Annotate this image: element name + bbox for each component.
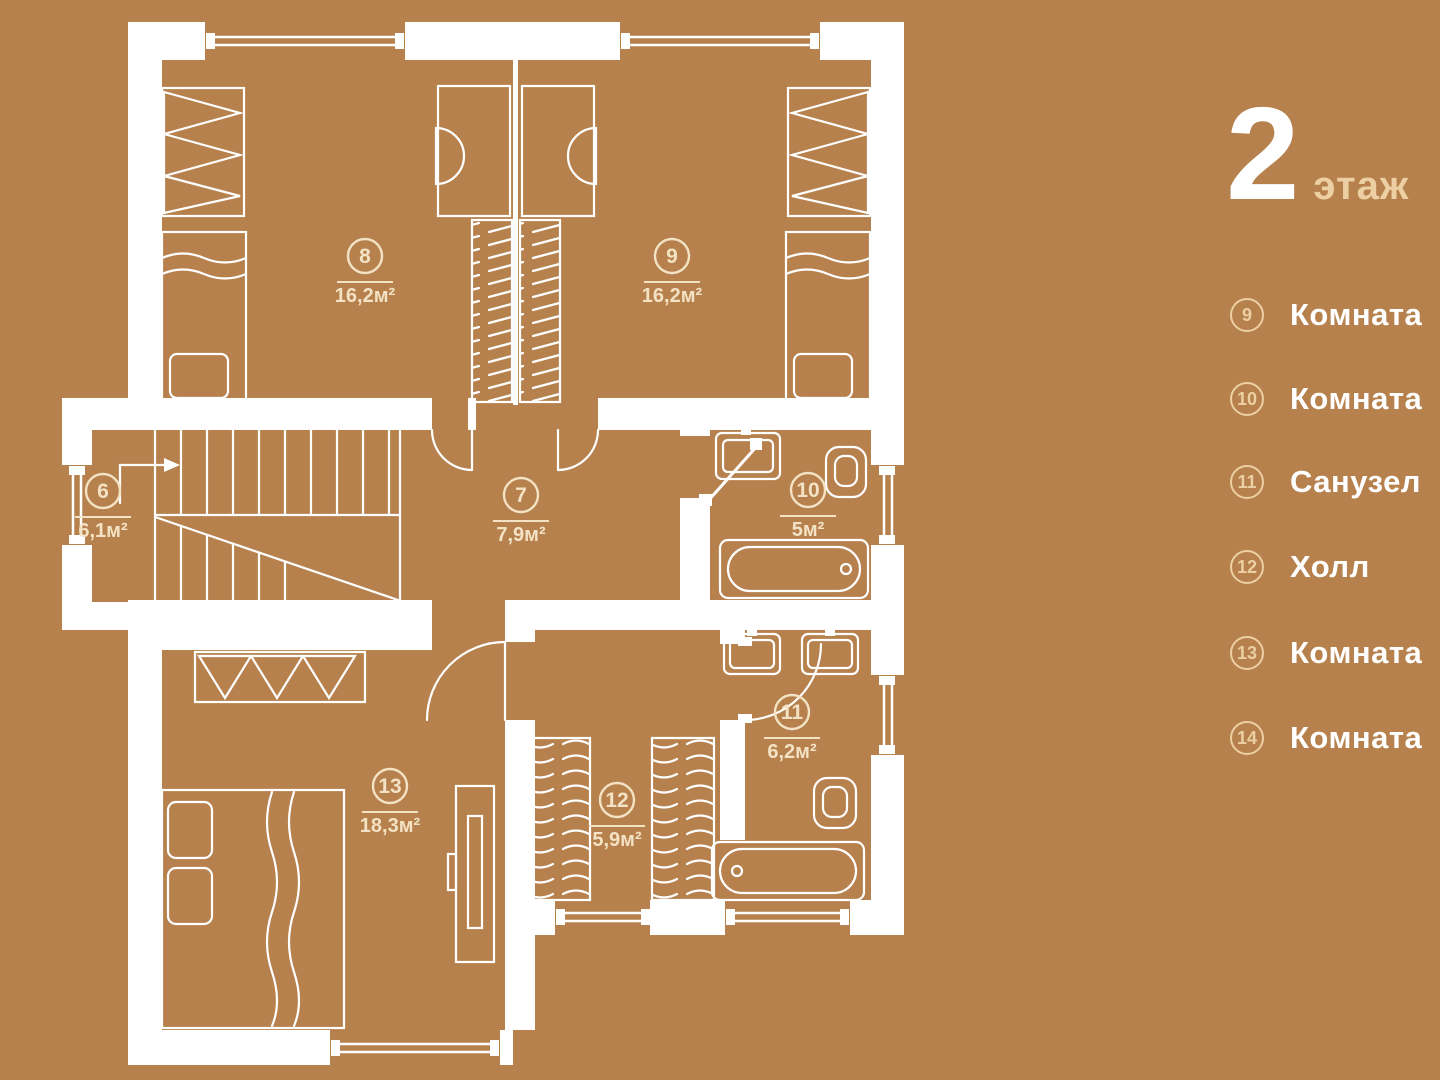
closet-room8 [472, 220, 512, 402]
room-11-number: 11 [781, 701, 804, 724]
wall-mid-left [128, 398, 432, 430]
desk-room9 [522, 86, 594, 216]
wall-mid-right [606, 398, 871, 430]
bed-room9 [786, 232, 870, 418]
window-hall12-bottom [555, 900, 650, 935]
wall-bath10-left [680, 498, 710, 600]
door-room8 [432, 430, 472, 470]
wall-room13-right-stub [505, 630, 535, 642]
wall-band-right [505, 600, 871, 630]
wardrobe-right-hall12 [652, 738, 714, 900]
doors [427, 430, 821, 723]
sink-bath10 [716, 426, 780, 479]
stair-treads [155, 430, 400, 602]
stair-direction-arrow [120, 458, 180, 503]
room-9-furniture [522, 86, 870, 418]
wall-left-upper [128, 22, 162, 430]
bath-10-fixtures [716, 426, 868, 598]
room-8-label: 8 16,2м² [335, 239, 396, 307]
door-room13 [427, 642, 505, 720]
toilet-bath11 [814, 778, 856, 828]
wall-band-left [128, 600, 432, 650]
room-12-number: 12 [605, 789, 628, 812]
room-13-furniture [162, 652, 494, 1028]
room-13-area: 18,3м² [360, 815, 421, 837]
room-11-label: 11 6,2м² [764, 695, 820, 763]
room-10-label: 10 5м² [780, 473, 836, 541]
room-7-number: 7 [515, 484, 527, 507]
door-jamb-room9 [598, 398, 606, 430]
wall-stair-top [62, 398, 132, 430]
floor-suffix: этаж [1313, 164, 1409, 209]
bathtub-bath10 [720, 540, 868, 598]
wardrobe-room9 [788, 88, 870, 216]
floor-plan-svg: 6 6,1м² 7 7,9м² 8 16,2м² 9 16,2м² 10 5м² [0, 0, 1440, 1080]
window-bath11-bottom [725, 900, 850, 935]
tv-unit-room13 [448, 786, 494, 962]
floor-number: 2 [1226, 88, 1299, 220]
wall-bath10-left-stub [680, 430, 710, 436]
bed-room8 [162, 232, 246, 418]
sink-right-bath11 [802, 627, 858, 674]
room-12-area: 5,9м² [592, 829, 642, 851]
desk-room8 [438, 86, 510, 216]
room-9-number: 9 [666, 245, 678, 268]
bathtub-bath11 [712, 842, 864, 900]
room-13-number: 13 [378, 775, 401, 798]
staircase [120, 430, 400, 602]
room-6-area: 6,1м² [78, 520, 128, 542]
room-12-label: 12 5,9м² [589, 783, 645, 851]
room-8-number: 8 [359, 245, 371, 268]
door-room9 [558, 430, 598, 470]
chair-room8 [436, 128, 464, 184]
room-7-area: 7,9м² [496, 524, 546, 546]
room-13-label: 13 18,3м² [360, 769, 421, 837]
room-11-area: 6,2м² [767, 741, 817, 763]
window-room13-bottom [330, 1030, 500, 1065]
closet-room9 [520, 220, 560, 402]
wardrobe-room13 [195, 652, 365, 702]
room-8-furniture [162, 86, 510, 418]
sink-left-bath11 [724, 627, 780, 674]
wardrobe-left-hall12 [528, 738, 590, 900]
wall-left-lower [128, 650, 162, 1065]
room-10-number: 10 [796, 479, 819, 502]
room-6-number: 6 [97, 480, 109, 503]
wall-bath11-left [720, 720, 745, 840]
window-room8-top [205, 22, 405, 60]
room-8-area: 16,2м² [335, 285, 396, 307]
floor-plan-page: 6 6,1м² 7 7,9м² 8 16,2м² 9 16,2м² 10 5м² [0, 0, 1440, 1080]
window-room9-top [620, 22, 820, 60]
room-7-label: 7 7,9м² [493, 478, 549, 546]
room-9-label: 9 16,2м² [642, 239, 703, 307]
double-bed-room13 [162, 790, 344, 1028]
floor-title: 2 этаж [1226, 88, 1409, 220]
chair-room9 [568, 128, 596, 184]
wardrobe-room8 [162, 88, 244, 216]
window-bath10-right [871, 465, 904, 545]
wall-partition-rooms-8-9 [513, 60, 518, 405]
window-bath11-right [871, 675, 904, 755]
room-9-area: 16,2м² [642, 285, 703, 307]
room-10-area: 5м² [792, 519, 825, 541]
hall-12-furniture [528, 738, 714, 900]
toilet-bath10 [826, 447, 866, 497]
